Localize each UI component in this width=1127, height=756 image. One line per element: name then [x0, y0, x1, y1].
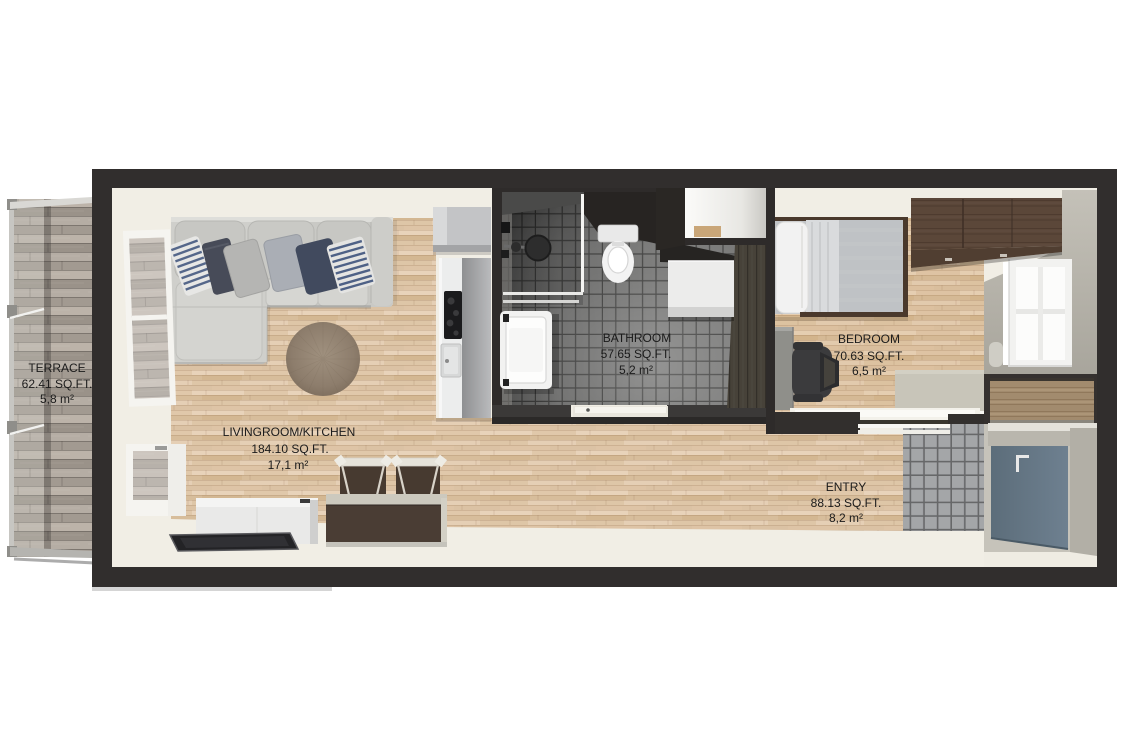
svg-text:88.13 SQ.FT.: 88.13 SQ.FT. — [811, 496, 882, 510]
svg-text:BATHROOM: BATHROOM — [603, 331, 671, 345]
svg-text:6,5 m²: 6,5 m² — [852, 364, 886, 378]
svg-text:184.10 SQ.FT.: 184.10 SQ.FT. — [251, 442, 328, 456]
svg-text:BEDROOM: BEDROOM — [838, 332, 900, 346]
svg-text:5,2 m²: 5,2 m² — [619, 363, 653, 377]
svg-text:17,1 m²: 17,1 m² — [268, 458, 309, 472]
svg-text:8,2 m²: 8,2 m² — [829, 511, 863, 525]
svg-text:TERRACE: TERRACE — [28, 361, 85, 375]
svg-text:70.63 SQ.FT.: 70.63 SQ.FT. — [834, 349, 905, 363]
svg-text:57.65 SQ.FT.: 57.65 SQ.FT. — [601, 347, 672, 361]
svg-text:LIVINGROOM/KITCHEN: LIVINGROOM/KITCHEN — [223, 425, 356, 439]
svg-text:5,8 m²: 5,8 m² — [40, 392, 74, 406]
svg-text:62.41 SQ.FT.: 62.41 SQ.FT. — [22, 377, 93, 391]
svg-text:ENTRY: ENTRY — [826, 480, 866, 494]
